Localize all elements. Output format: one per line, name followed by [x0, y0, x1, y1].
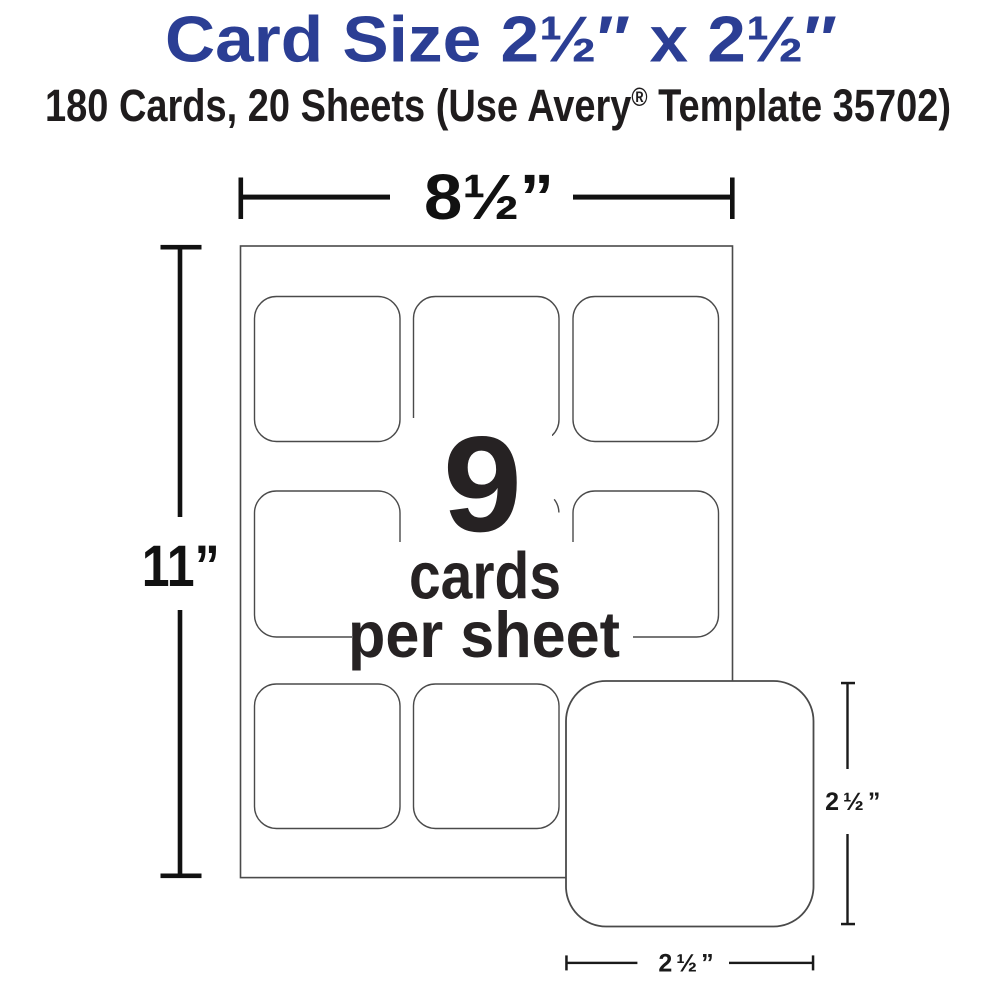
svg-text:2½”: 2½” — [825, 788, 884, 816]
svg-text:2½”: 2½” — [658, 950, 717, 978]
svg-text:8½”: 8½” — [424, 161, 554, 233]
svg-text:180 Cards, 20 Sheets (Use Aver: 180 Cards, 20 Sheets (Use Avery® Templat… — [45, 80, 951, 131]
svg-text:9: 9 — [443, 408, 522, 560]
svg-text:11”: 11” — [142, 534, 220, 599]
svg-text:Card Size 2½″ x 2½″: Card Size 2½″ x 2½″ — [165, 3, 837, 76]
svg-text:per sheet: per sheet — [348, 598, 620, 671]
